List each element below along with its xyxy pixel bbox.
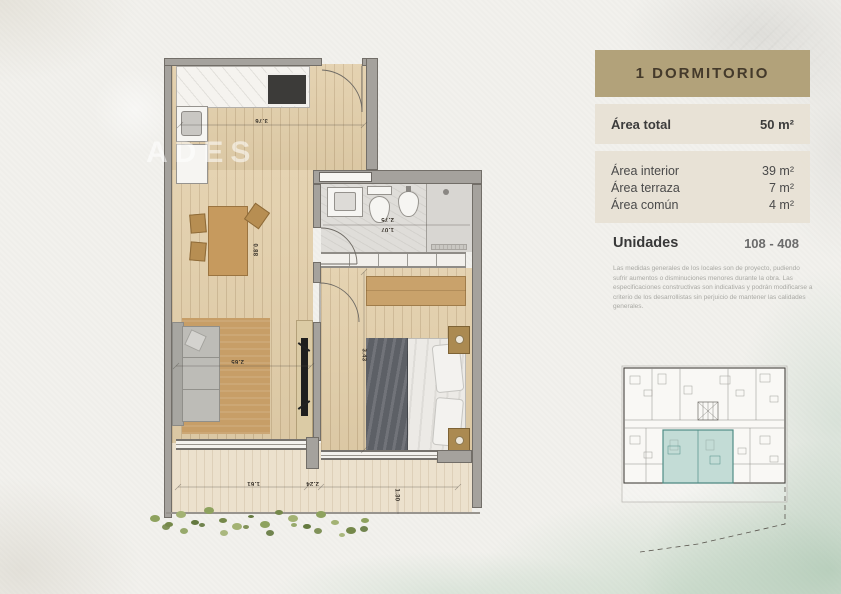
plan-type-header: 1 DORMITORIO [595, 50, 810, 97]
area-row: Área interior 39 m² [611, 162, 794, 179]
dimension-label: 2.75 [381, 216, 394, 222]
disclaimer-text: Las medidas generales de los locales son… [613, 264, 813, 312]
units-row: Unidades 108 - 408 [613, 235, 799, 251]
area-total-value: 50 m² [760, 117, 794, 132]
area-value: 4 m² [769, 198, 794, 212]
area-label: Área terraza [611, 181, 680, 195]
floorplan: 3.76 0.88 2.75 1.07 2.65 3.43 1.61 2.24 … [0, 0, 520, 594]
area-row: Área común 4 m² [611, 196, 794, 213]
brochure-page: 3.76 0.88 2.75 1.07 2.65 3.43 1.61 2.24 … [0, 0, 841, 594]
dimension-label: 1.07 [381, 226, 394, 232]
units-label: Unidades [613, 235, 678, 251]
area-row: Área terraza 7 m² [611, 179, 794, 196]
dimension-label: 3.43 [360, 349, 366, 362]
area-value: 7 m² [769, 181, 794, 195]
dimension-label: 0.88 [251, 244, 257, 257]
terrace-plants [162, 524, 170, 530]
area-total-label: Área total [611, 117, 671, 132]
plan-annotations [150, 50, 490, 530]
area-total-box: Área total 50 m² [595, 104, 810, 144]
area-label: Área interior [611, 164, 679, 178]
area-label: Área común [611, 198, 678, 212]
area-detail-box: Área interior 39 m² Área terraza 7 m² Ár… [595, 151, 810, 223]
dimension-label: 2.24 [306, 480, 319, 486]
keyplan [610, 356, 820, 566]
watermark: ADES [146, 136, 257, 170]
terrace-plants [150, 515, 160, 522]
dimension-label: 2.65 [231, 358, 244, 364]
units-value: 108 - 408 [744, 236, 799, 251]
dimension-label: 3.76 [255, 117, 268, 123]
dimension-label: 1.61 [247, 480, 260, 486]
area-value: 39 m² [762, 164, 794, 178]
dimension-label: 1.30 [393, 489, 399, 502]
